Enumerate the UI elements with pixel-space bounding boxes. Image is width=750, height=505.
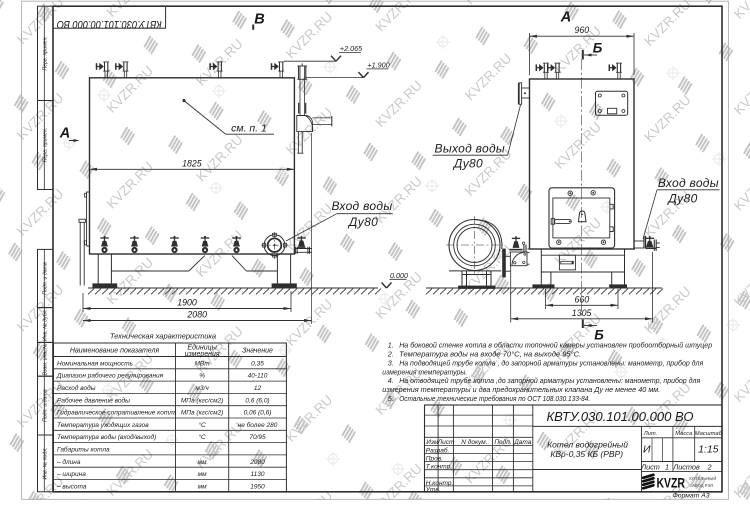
svg-text:Ду80: Ду80 bbox=[666, 192, 697, 206]
svg-text:Вход воды: Вход воды bbox=[332, 199, 393, 213]
svg-text:Масса: Масса bbox=[675, 431, 693, 437]
svg-text:1900: 1900 bbox=[177, 298, 197, 308]
svg-text:мм: мм bbox=[198, 471, 207, 478]
svg-text:Утв.: Утв. bbox=[425, 486, 441, 493]
svg-text:+1.900: +1.900 bbox=[367, 60, 389, 69]
svg-text:Выход воды: Выход воды bbox=[435, 142, 505, 156]
svg-text:1.: 1. bbox=[388, 341, 394, 350]
svg-text:И: И bbox=[643, 443, 651, 455]
svg-text:Т.контр.: Т.контр. bbox=[426, 464, 452, 471]
svg-text:1950: 1950 bbox=[250, 483, 265, 490]
svg-text:KVZR: KVZR bbox=[657, 474, 686, 490]
svg-text:°С: °С bbox=[198, 421, 206, 429]
svg-text:Взам. инв. №: Взам. инв. № bbox=[43, 343, 49, 375]
svg-text:ЗАВОД РЭП: ЗАВОД РЭП bbox=[689, 483, 713, 488]
svg-text:Котел водогрейный: Котел водогрейный bbox=[547, 440, 628, 450]
svg-text:Лист: Лист bbox=[640, 462, 660, 471]
svg-text:КОТЕЛЬНЫЙ: КОТЕЛЬНЫЙ bbox=[689, 474, 716, 481]
svg-text:1130: 1130 bbox=[251, 471, 265, 478]
svg-text:1305: 1305 bbox=[572, 308, 592, 318]
svg-text:Наименование показателя: Наименование показателя bbox=[70, 348, 160, 355]
svg-text:МВт: МВт bbox=[195, 360, 211, 367]
svg-text:Масштаб: Масштаб bbox=[695, 431, 723, 437]
svg-text:– длина: – длина bbox=[56, 458, 81, 466]
svg-text:0,06 (0,6): 0,06 (0,6) bbox=[244, 410, 272, 417]
svg-text:МПа (кгс/см2): МПа (кгс/см2) bbox=[181, 410, 223, 417]
svg-text:Техническая характеристика: Техническая характеристика bbox=[110, 331, 216, 340]
svg-text:Температура воды на входе 70°С: Температура воды на входе 70°С, на выход… bbox=[399, 350, 581, 359]
svg-text:Б: Б bbox=[593, 41, 603, 56]
svg-text:мм: мм bbox=[198, 483, 207, 490]
svg-text:Рабочее давление воды: Рабочее давление воды bbox=[57, 396, 130, 404]
svg-text:Инв. № дубл.: Инв. № дубл. bbox=[43, 309, 49, 341]
svg-text:– высота: – высота bbox=[56, 483, 87, 490]
svg-text:А: А bbox=[560, 10, 571, 26]
svg-text:В: В bbox=[254, 12, 264, 28]
svg-text:Температура воды (вход/выход): Температура воды (вход/выход) bbox=[57, 433, 156, 441]
svg-text:Значение: Значение bbox=[242, 348, 273, 355]
svg-text:измерения температуры и два пр: измерения температуры и два предохраните… bbox=[382, 385, 660, 394]
svg-text:Листов: Листов bbox=[672, 462, 700, 471]
svg-text:660: 660 bbox=[574, 294, 589, 304]
svg-text:Формат А3: Формат А3 bbox=[672, 492, 709, 499]
svg-text:70/95: 70/95 bbox=[249, 434, 266, 441]
svg-text:2080: 2080 bbox=[249, 459, 265, 466]
svg-text:Перв. примен.: Перв. примен. bbox=[43, 36, 49, 70]
svg-text:Остальные технические требован: Остальные технические требования по ОСТ … bbox=[399, 394, 590, 403]
svg-text:– ширина: – ширина bbox=[56, 471, 86, 478]
svg-text:Инв. № подл.: Инв. № подл. bbox=[43, 447, 49, 479]
svg-text:Габариты котла: Габариты котла bbox=[57, 446, 110, 454]
svg-text:°С: °С bbox=[198, 433, 206, 441]
svg-text:КВТУ.030.101.00.000 ВО: КВТУ.030.101.00.000 ВО bbox=[547, 409, 694, 424]
svg-text:мм: мм bbox=[198, 459, 207, 466]
svg-text:А: А bbox=[59, 126, 70, 142]
svg-text:Номинальная мощность: Номинальная мощность bbox=[57, 360, 134, 367]
svg-text:2.: 2. bbox=[387, 350, 394, 359]
svg-text:КВр-0,35 КБ (РВР): КВр-0,35 КБ (РВР) bbox=[550, 449, 623, 459]
svg-text:Гидравлическое сопративление к: Гидравлическое сопративление котла bbox=[57, 409, 177, 417]
svg-text:Вход воды: Вход воды bbox=[658, 176, 719, 190]
svg-text:1825: 1825 bbox=[182, 158, 202, 168]
svg-text:Расход воды: Расход воды bbox=[57, 384, 96, 392]
svg-text:+2.065: +2.065 bbox=[340, 44, 363, 53]
svg-text:МПа (кгс/см2): МПа (кгс/см2) bbox=[181, 397, 223, 404]
svg-text:12: 12 bbox=[254, 385, 262, 392]
svg-text:не более 280: не более 280 bbox=[238, 421, 278, 429]
svg-text:3.: 3. bbox=[388, 358, 394, 367]
svg-text:0,6 (6,0): 0,6 (6,0) bbox=[245, 397, 269, 404]
svg-text:Диапазон рабочего регулировани: Диапазон рабочего регулирования bbox=[56, 372, 164, 380]
svg-text:0.000: 0.000 bbox=[390, 271, 408, 280]
svg-text:КВТУ.030.101.00.000 ВО: КВТУ.030.101.00.000 ВО bbox=[56, 18, 161, 30]
svg-text:Разраб.: Разраб. bbox=[426, 446, 450, 454]
svg-text:1:15: 1:15 bbox=[698, 443, 719, 455]
svg-text:Подп. и дата: Подп. и дата bbox=[43, 262, 49, 295]
svg-text:см. п. 1: см. п. 1 bbox=[231, 123, 267, 135]
svg-text:Подп.: Подп. bbox=[494, 438, 511, 446]
svg-text:Лист: Лист bbox=[437, 439, 455, 446]
svg-text:5.: 5. bbox=[388, 394, 394, 403]
svg-text:%: % bbox=[199, 373, 205, 380]
svg-text:измерения температуры.: измерения температуры. bbox=[382, 367, 467, 376]
svg-text:Ду80: Ду80 bbox=[347, 215, 378, 229]
svg-text:Дата: Дата bbox=[513, 439, 532, 446]
svg-text:40-110: 40-110 bbox=[248, 373, 268, 380]
svg-text:На подводящей трубе котла , до: На подводящей трубе котла , до запорной … bbox=[399, 358, 703, 367]
svg-text:960: 960 bbox=[574, 25, 589, 35]
svg-text:На отводящей трубе котла ,до з: На отводящей трубе котла ,до запорной ар… bbox=[399, 376, 700, 385]
svg-text:Лит.: Лит. bbox=[643, 431, 658, 437]
svg-text:N докум.: N докум. bbox=[461, 438, 487, 446]
svg-text:0,35: 0,35 bbox=[251, 360, 264, 367]
svg-text:Ду80: Ду80 bbox=[452, 157, 483, 171]
svg-text:1: 1 bbox=[665, 462, 669, 471]
svg-text:4.: 4. bbox=[388, 376, 394, 385]
svg-text:2: 2 bbox=[706, 462, 711, 471]
svg-text:Перв. примен.: Перв. примен. bbox=[43, 128, 49, 162]
svg-text:Подп. и дата: Подп. и дата bbox=[43, 389, 49, 422]
svg-text:измерения: измерения bbox=[185, 351, 220, 358]
svg-text:м3/ч: м3/ч bbox=[195, 385, 209, 392]
svg-text:2080: 2080 bbox=[186, 310, 207, 320]
svg-text:Температура уходящих газов: Температура уходящих газов bbox=[57, 421, 149, 429]
svg-text:Пров.: Пров. bbox=[426, 456, 443, 463]
svg-text:На боковой стенке котла в обла: На боковой стенке котла в области топочн… bbox=[399, 341, 712, 350]
